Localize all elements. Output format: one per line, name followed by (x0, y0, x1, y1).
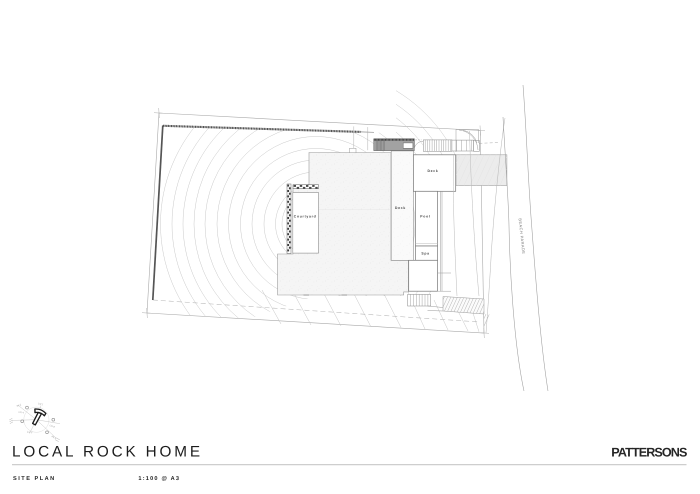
svg-text:SITE PLAN: SITE PLAN (13, 476, 56, 482)
svg-text:PATTERSONS: PATTERSONS (611, 446, 687, 460)
svg-text:LOCAL ROCK HOME: LOCAL ROCK HOME (12, 443, 203, 460)
svg-text:Spa: Spa (421, 252, 429, 256)
svg-text:Deck: Deck (428, 169, 439, 173)
svg-text:1:100 @ A3: 1:100 @ A3 (138, 476, 180, 482)
svg-text:Courtyard: Courtyard (294, 214, 317, 218)
svg-text:Deck: Deck (395, 206, 406, 210)
svg-text:Pool: Pool (420, 215, 430, 219)
